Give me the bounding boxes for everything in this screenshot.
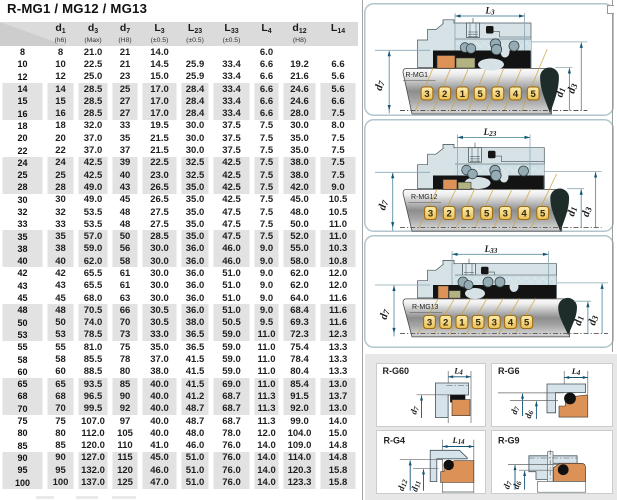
svg-text:3: 3 [424, 89, 429, 100]
svg-text:R-G6: R-G6 [498, 366, 520, 376]
svg-text:2: 2 [447, 208, 452, 219]
svg-text:2: 2 [442, 89, 447, 100]
svg-text:5: 5 [484, 208, 490, 219]
svg-text:1: 1 [459, 317, 465, 328]
svg-text:4: 4 [508, 317, 514, 328]
svg-text:5: 5 [477, 89, 483, 100]
svg-text:4: 4 [521, 208, 527, 219]
svg-text:R-MG1: R-MG1 [406, 72, 429, 79]
svg-text:5: 5 [531, 89, 537, 100]
svg-text:R-G60: R-G60 [382, 366, 409, 376]
svg-text:R-G9: R-G9 [498, 436, 520, 446]
svg-text:4: 4 [513, 89, 519, 100]
svg-text:1: 1 [465, 208, 471, 219]
svg-text:5: 5 [475, 317, 481, 328]
svg-text:3: 3 [495, 89, 500, 100]
svg-text:3: 3 [428, 208, 433, 219]
svg-text:3: 3 [427, 317, 432, 328]
svg-text:1: 1 [460, 89, 466, 100]
svg-text:5: 5 [524, 317, 530, 328]
svg-text:5: 5 [540, 208, 546, 219]
svg-text:2: 2 [443, 317, 448, 328]
svg-text:R-G4: R-G4 [383, 436, 405, 446]
svg-text:3: 3 [503, 208, 508, 219]
svg-text:3: 3 [492, 317, 497, 328]
